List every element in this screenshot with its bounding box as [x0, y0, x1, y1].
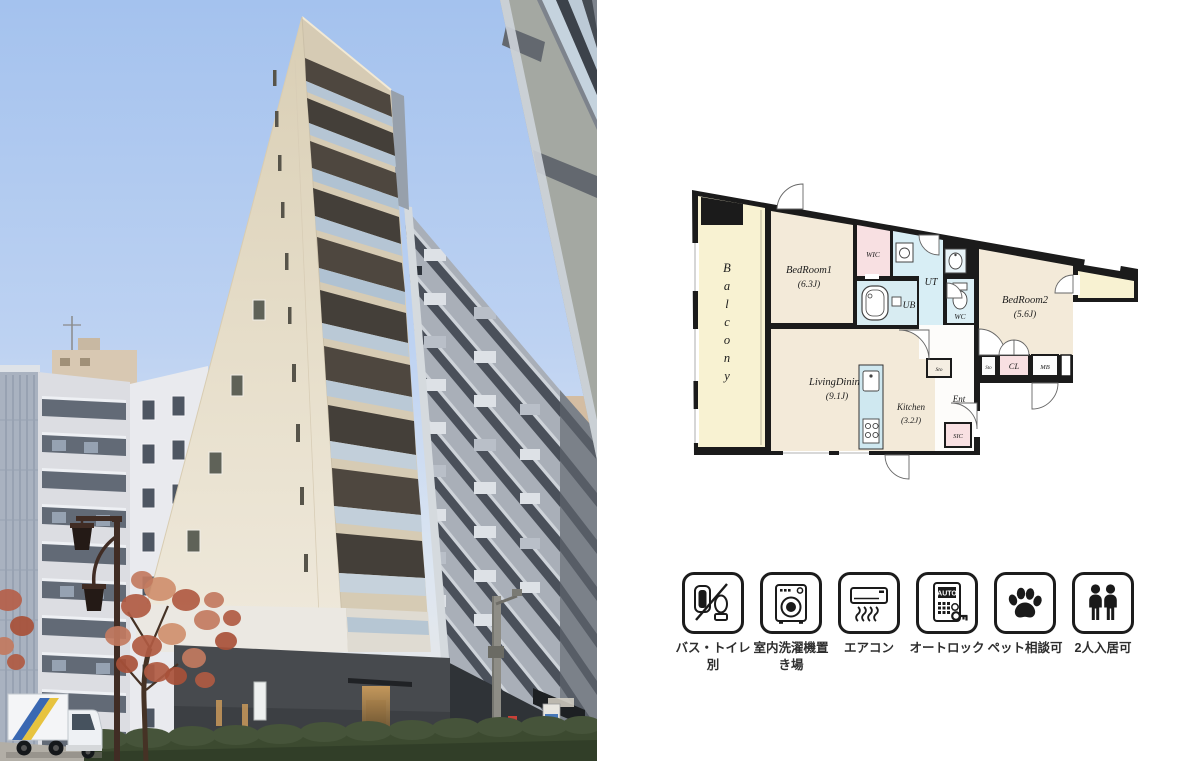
ub-label: UB — [903, 301, 916, 311]
amenity-autolock: AUTO オートロック — [908, 572, 986, 673]
amenity-label: ペット相談可 — [986, 640, 1064, 657]
sign-post — [254, 682, 266, 720]
pets-negotiable-icon — [1003, 581, 1047, 625]
two-person-occupancy-icon — [1081, 581, 1125, 625]
bedroom1-size: (6.3J) — [798, 279, 820, 290]
floor-plan-art: Balcony BedRoom1 (6.3J) WIC — [687, 183, 1147, 483]
room-sto-left: Sto — [927, 359, 951, 377]
sto-right-label: Sto — [985, 366, 992, 371]
amenity-label: 室内洗濯機置き場 — [752, 640, 830, 673]
amenity-label: 2人入居可 — [1064, 640, 1142, 657]
room-ub: UB — [857, 281, 917, 325]
ut-label: UT — [925, 277, 939, 288]
room-mb: MB — [1032, 355, 1058, 376]
mb-label: MB — [1039, 364, 1049, 371]
room-livingdining: LivingDining (9.1J) Kitchen (3.2J) — [771, 329, 935, 451]
amenity-pets: ペット相談可 — [986, 572, 1064, 673]
kitchen-size: (3.2J) — [901, 415, 921, 425]
auto-display-text: AUTO — [937, 591, 957, 598]
room-sto-right: Sto — [981, 356, 996, 376]
bedroom1-name: BedRoom1 — [786, 265, 832, 276]
room-wic: WIC — [857, 225, 890, 279]
amenity-two-person: 2人入居可 — [1064, 572, 1142, 673]
listing-page: Balcony BedRoom1 (6.3J) WIC — [0, 0, 1200, 761]
amenity-aircon: エアコン — [830, 572, 908, 673]
building-photo — [0, 0, 597, 761]
amenity-row: バス・トイレ別 室内洗濯機置き場 — [674, 572, 1142, 673]
room-sic: SIC — [945, 423, 971, 447]
sic-label: SIC — [953, 433, 963, 440]
kitchen-name: Kitchen — [896, 402, 925, 412]
living-name: LivingDining — [808, 377, 865, 388]
amenity-label: エアコン — [830, 640, 908, 657]
amenity-bath-toilet: バス・トイレ別 — [674, 572, 752, 673]
floor-plan: Balcony BedRoom1 (6.3J) WIC — [687, 183, 1147, 483]
auto-lock-icon: AUTO — [925, 581, 969, 625]
bedroom2-size: (5.6J) — [1014, 309, 1036, 320]
amenity-label: バス・トイレ別 — [674, 640, 752, 673]
sto-left-label: Sto — [935, 367, 942, 373]
kitchen-counter — [859, 365, 883, 449]
balcony-label: Balcony — [720, 261, 734, 387]
room-cl: CL — [999, 355, 1029, 376]
washbasin — [945, 249, 966, 273]
wic-label: WIC — [866, 250, 881, 259]
building-photo-art — [0, 0, 597, 761]
air-conditioner-icon — [847, 581, 891, 625]
wc-label: WC — [954, 312, 966, 321]
cl-label: CL — [1009, 361, 1020, 371]
bath-toilet-separate-icon — [691, 581, 735, 625]
bedroom2-name: BedRoom2 — [1002, 295, 1049, 306]
indoor-washer-space-icon — [769, 581, 813, 625]
amenity-washer: 室内洗濯機置き場 — [752, 572, 830, 673]
room-balcony: Balcony — [698, 196, 765, 447]
living-size: (9.1J) — [826, 391, 848, 402]
ent-label: Ent — [952, 394, 966, 404]
room-bedroom1: BedRoom1 (6.3J) — [771, 211, 853, 323]
amenity-label: オートロック — [908, 640, 986, 657]
meter-box — [1061, 355, 1071, 376]
